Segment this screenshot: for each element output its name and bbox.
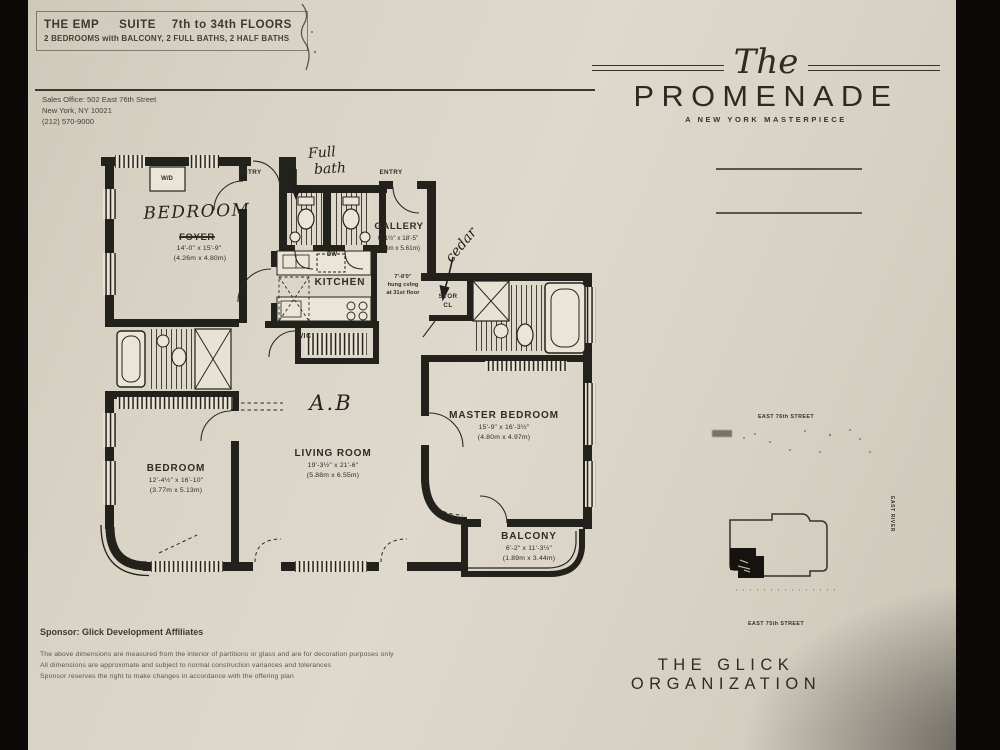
entry-label-right: ENTRY: [379, 169, 402, 176]
handwritten-initials: A.B: [309, 392, 352, 416]
bedroom-label: BEDROOM: [147, 463, 206, 474]
sales-office-address: Sales Office: 502 East 76th Street: [42, 94, 156, 105]
gallery-dimensions-metric: (1.86m x 5.61m): [374, 245, 420, 252]
photo-background-right: [956, 0, 1000, 750]
entry-label-left: ENTRY: [238, 169, 261, 176]
photocopy-squiggle-mark: [288, 2, 332, 74]
ceiling-note-height: 7'-8'0": [394, 274, 411, 280]
suite-word: SUITE: [119, 19, 156, 31]
logo-tagline: A NEW YORK MASTERPIECE: [592, 115, 940, 124]
kitchen-label: KITCHEN: [315, 277, 366, 288]
disclaimer-line-1: The above dimensions are measured from t…: [40, 651, 394, 658]
ceiling-note-line2: hung cvlng: [388, 282, 419, 288]
sales-office-block: Sales Office: 502 East 76th Street New Y…: [42, 94, 156, 127]
gallery-label: GALLERY: [374, 222, 423, 233]
logo-wordmark: PROMENADE: [582, 81, 951, 114]
master-bedroom-dimensions: 15'-9" x 16'-3½": [479, 424, 530, 432]
storage-closet-label-line2: CL: [443, 302, 452, 309]
street-label-bottom: EAST 75th STREET: [748, 621, 804, 627]
bedroom-dimensions: 12'-4½" x 16'-10": [149, 477, 204, 485]
handwritten-bedroom-label: BEDROOM: [143, 201, 251, 224]
storage-closet-label-line1: STOR: [439, 293, 458, 300]
photo-background-left: [0, 0, 28, 750]
washer-dryer-label: W/D: [161, 176, 173, 183]
sales-office-phone: (212) 570-9000: [42, 116, 156, 127]
disclaimer-line-3: Sponsor reserves the right to make chang…: [40, 673, 294, 680]
handwritten-bath-label: bath: [314, 161, 347, 178]
foyer-dimensions: 14'-0" x 15'-9": [177, 245, 222, 253]
promenade-logo: The PROMENADE A NEW YORK MASTERPIECE: [592, 46, 940, 124]
master-bedroom-label: MASTER BEDROOM: [449, 410, 559, 421]
east-river-label: EAST RIVER: [888, 496, 894, 532]
logo-right-rule: [808, 65, 940, 71]
floor-plan-drawing: [55, 145, 605, 625]
suite-description: 2 BEDROOMS with BALCONY, 2 FULL BATHS, 2…: [44, 34, 289, 43]
street-label-top: EAST 76th STREET: [758, 414, 814, 420]
ceiling-note-line3: at 31st floor: [386, 290, 419, 296]
balcony-label: BALCONY: [501, 531, 557, 542]
photo-of-floorplan: THE EMP SUITE 7th to 34th FLOORS 2 BEDRO…: [0, 0, 1000, 750]
foyer-label-crossed-out: FOYER: [179, 233, 215, 244]
disclaimer-line-2: All dimensions are approximate and subje…: [40, 662, 331, 669]
right-decorative-rule-1: [716, 168, 862, 170]
master-bedroom-dimensions-metric: (4.80m x 4.97m): [478, 434, 530, 442]
site-map-drawing: [710, 420, 895, 600]
suite-name: THE EMP: [44, 19, 99, 31]
right-decorative-rule-2: [716, 212, 862, 214]
glick-organization-wordmark: THE GLICK ORGANIZATION: [560, 656, 892, 694]
letterhead-rule: [35, 89, 595, 91]
foyer-dimensions-metric: (4.26m x 4.80m): [174, 255, 226, 263]
bedroom-dimensions-metric: (3.77m x 5.13m): [150, 487, 202, 495]
living-room-dimensions: 19'-3½" x 21'-6": [308, 462, 359, 470]
suite-title-line: THE EMP SUITE 7th to 34th FLOORS: [44, 19, 292, 31]
suite-header-box: [36, 11, 308, 51]
balcony-dimensions: 6'-2" x 11'-3½": [506, 545, 552, 553]
map-smudge-mark: [712, 430, 732, 437]
walk-in-closet-label: WIC: [296, 333, 311, 341]
living-room-dimensions-metric: (5.88m x 6.55m): [307, 472, 359, 480]
sales-office-city: New York, NY 10021: [42, 105, 156, 116]
logo-left-rule: [592, 65, 724, 71]
logo-script-the: The: [724, 42, 809, 82]
sponsor-line: Sponsor: Glick Development Affiliates: [40, 626, 203, 638]
gallery-dimensions: 6'-1½" x 18'-5": [378, 235, 418, 242]
dishwasher-label: DW: [327, 252, 337, 259]
living-room-label: LIVING ROOM: [294, 448, 371, 459]
suite-floors: 7th to 34th FLOORS: [172, 19, 292, 31]
balcony-dimensions-metric: (1.89m x 3.44m): [503, 555, 555, 563]
